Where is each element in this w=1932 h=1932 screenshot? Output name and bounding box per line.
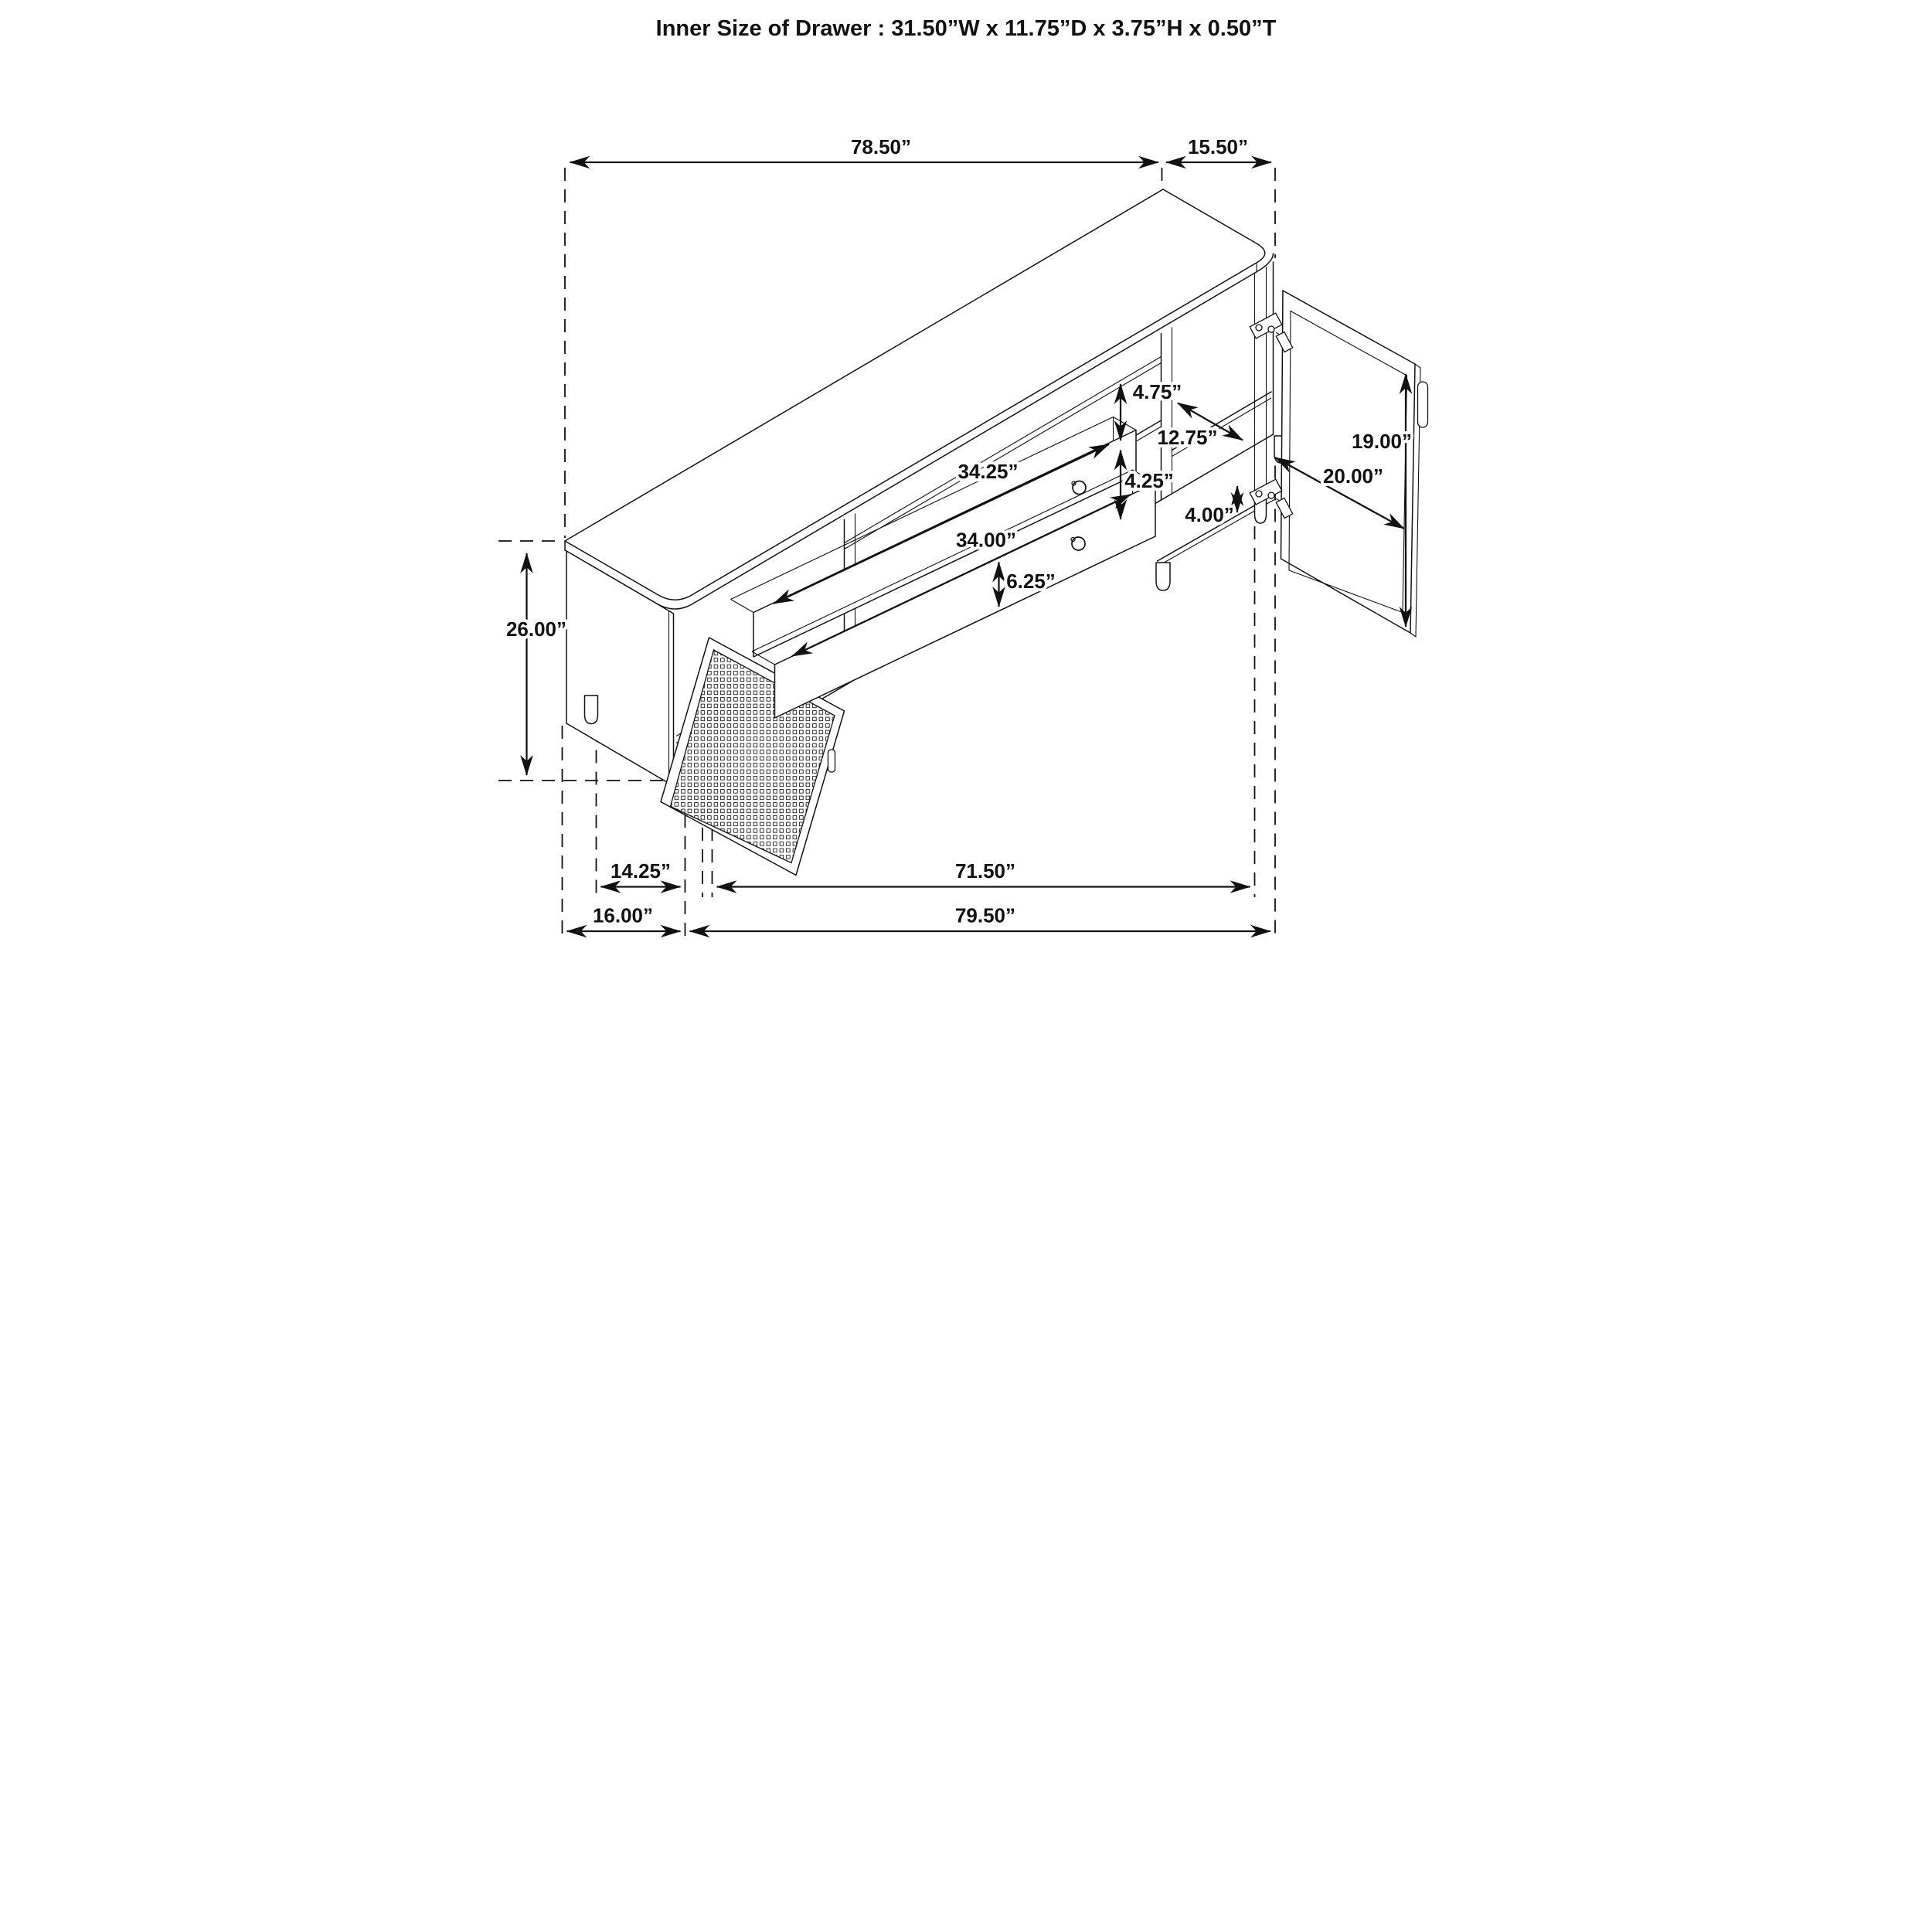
dim-overall-height: 26.00” <box>506 553 566 775</box>
cabinet-body <box>565 189 1288 786</box>
dim-label-leg-inset: 14.25” <box>611 859 671 883</box>
dimension-diagram-page: Inner Size of Drawer : 31.50”W x 11.75”D… <box>483 0 1449 966</box>
dim-label-glass-door-height: 19.00” <box>1352 430 1412 453</box>
dim-label-drawer-opening-height: 4.25” <box>1124 469 1174 492</box>
glass-door-frame <box>1281 291 1416 633</box>
dim-leg-inset: 14.25” <box>601 859 681 887</box>
drawer-upper-knob <box>1073 481 1086 495</box>
dim-label-door-opening-depth: 12.75” <box>1157 426 1217 449</box>
dim-label-overall-height: 26.00” <box>506 617 566 641</box>
dim-leg-clearance: 4.00” <box>1185 486 1237 526</box>
drawer-lower-knob <box>1072 537 1085 550</box>
diagram-title: Inner Size of Drawer : 31.50”W x 11.75”D… <box>656 16 1277 41</box>
dim-door-opening-depth: 12.75” <box>1157 403 1243 450</box>
glass-door <box>1250 291 1427 637</box>
dim-label-drawer-width-bottom: 34.00” <box>956 529 1016 552</box>
dim-label-drawer-width-top: 34.25” <box>957 460 1018 483</box>
dim-label-leg-clearance: 4.00” <box>1185 503 1234 526</box>
dim-label-side-depth: 16.00” <box>593 904 653 927</box>
dim-label-overall-base-width: 79.50” <box>955 904 1015 927</box>
dim-label-glass-door-width: 20.00” <box>1323 464 1383 488</box>
dim-top-width: 78.50” <box>570 135 1159 162</box>
dim-label-top-depth: 15.50” <box>1188 135 1248 158</box>
dim-top-depth: 15.50” <box>1166 135 1271 162</box>
dim-overall-base-width: 79.50” <box>690 904 1271 932</box>
dim-label-base-span: 71.50” <box>955 859 1015 883</box>
dim-label-drawer-front-height: 6.25” <box>1006 570 1056 593</box>
dim-label-shelf-opening-height: 4.75” <box>1133 380 1182 403</box>
dim-label-top-width: 78.50” <box>851 135 911 158</box>
mesh-door-handle <box>828 750 835 772</box>
dim-side-depth: 16.00” <box>567 904 681 932</box>
furniture-dimension-diagram: Inner Size of Drawer : 31.50”W x 11.75”D… <box>483 0 1449 966</box>
leg-back-left <box>585 696 598 724</box>
leg-mid-right <box>1156 563 1170 590</box>
glass-door-handle <box>1418 382 1428 427</box>
